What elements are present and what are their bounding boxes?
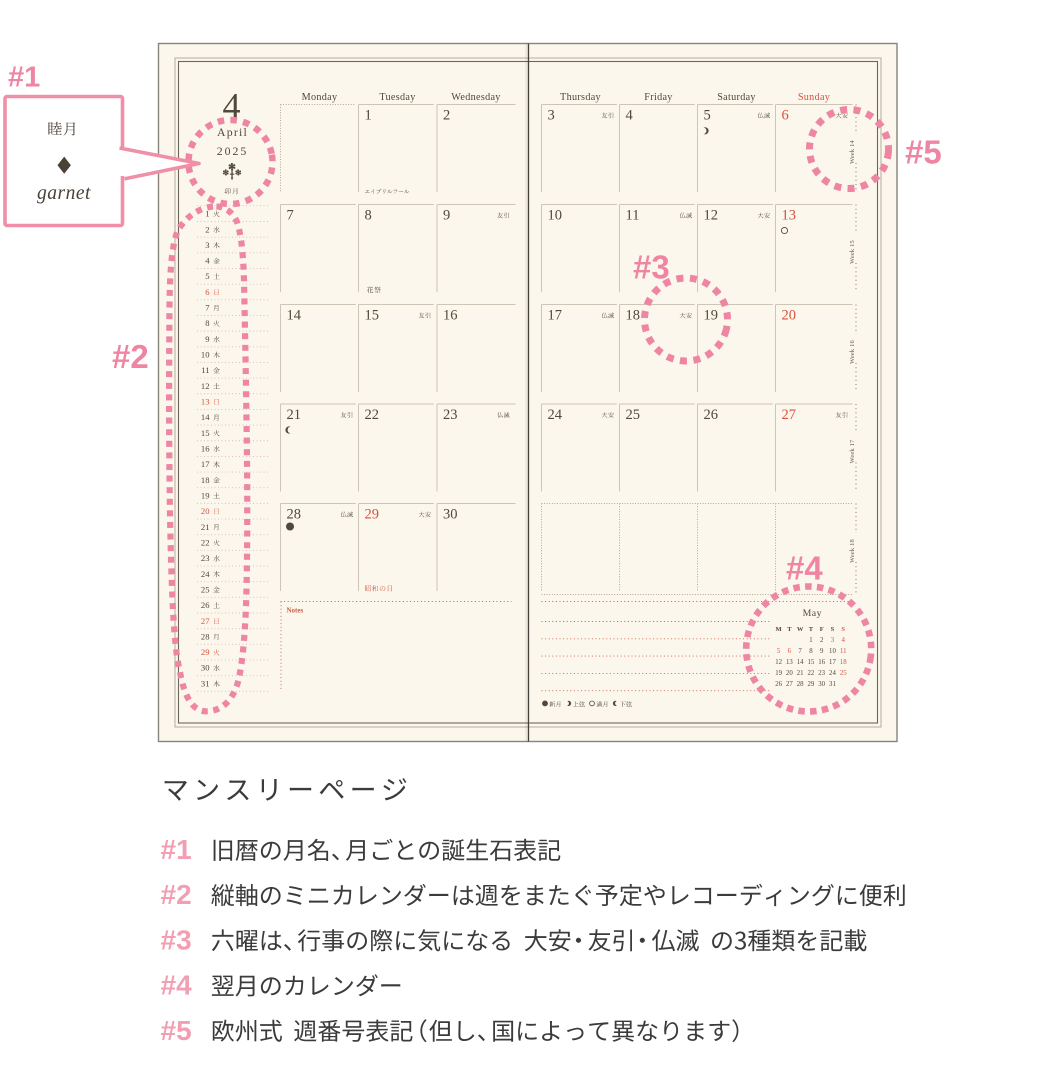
svg-text:27: 27 — [782, 407, 797, 423]
svg-text:12: 12 — [201, 381, 210, 391]
svg-text:13: 13 — [782, 208, 797, 224]
svg-text:3: 3 — [831, 637, 835, 644]
svg-text:21: 21 — [797, 670, 804, 677]
svg-text:1: 1 — [365, 108, 372, 124]
svg-text:2025: 2025 — [217, 144, 249, 158]
svg-text:7: 7 — [798, 648, 802, 655]
svg-text:S: S — [841, 626, 845, 633]
svg-text:30: 30 — [201, 663, 210, 673]
svg-text:S: S — [831, 626, 835, 633]
svg-text:14: 14 — [201, 412, 210, 422]
svg-text:garnet: garnet — [37, 183, 91, 204]
svg-text:24: 24 — [201, 569, 210, 579]
svg-text:18: 18 — [840, 659, 847, 666]
svg-text:31: 31 — [201, 678, 210, 688]
svg-text:22: 22 — [808, 670, 815, 677]
svg-text:3: 3 — [205, 240, 209, 250]
svg-text:8: 8 — [809, 648, 813, 655]
svg-text:#2: #2 — [112, 338, 149, 375]
svg-text:18: 18 — [626, 308, 641, 324]
svg-text:26: 26 — [775, 681, 782, 688]
svg-text:Friday: Friday — [644, 92, 673, 103]
svg-text:5: 5 — [205, 271, 209, 281]
svg-text:15: 15 — [808, 659, 815, 666]
svg-text:Tuesday: Tuesday — [379, 92, 416, 103]
svg-text:Week 17: Week 17 — [849, 439, 856, 463]
svg-text:20: 20 — [786, 670, 793, 677]
svg-text:28: 28 — [797, 681, 804, 688]
svg-text:23: 23 — [818, 670, 825, 677]
svg-text:13: 13 — [786, 659, 793, 666]
svg-text:Monday: Monday — [302, 92, 338, 103]
svg-text:10: 10 — [201, 350, 210, 360]
svg-text:26: 26 — [201, 600, 210, 610]
svg-text:4: 4 — [205, 256, 210, 266]
svg-text:25: 25 — [626, 407, 641, 423]
svg-text:April: April — [217, 125, 248, 139]
svg-text:26: 26 — [704, 407, 719, 423]
svg-text:22: 22 — [201, 537, 210, 547]
svg-text:Saturday: Saturday — [717, 92, 756, 103]
svg-text:28: 28 — [201, 631, 210, 641]
svg-text:30: 30 — [443, 507, 458, 523]
svg-text:21: 21 — [201, 522, 210, 532]
svg-text:#1: #1 — [161, 834, 192, 865]
svg-text:13: 13 — [201, 397, 210, 407]
svg-text:21: 21 — [287, 407, 302, 423]
svg-text:4: 4 — [626, 108, 634, 124]
svg-text:Week 14: Week 14 — [849, 140, 856, 164]
svg-text:20: 20 — [782, 308, 797, 324]
svg-text:28: 28 — [287, 507, 302, 523]
svg-text:7: 7 — [205, 303, 210, 313]
svg-text:T: T — [787, 626, 792, 633]
svg-text:Week 15: Week 15 — [849, 240, 856, 264]
svg-text:#3: #3 — [633, 249, 670, 286]
svg-text:23: 23 — [201, 553, 210, 563]
svg-text:T: T — [809, 626, 814, 633]
svg-text:#2: #2 — [161, 879, 192, 910]
svg-text:5: 5 — [777, 648, 781, 655]
svg-text:25: 25 — [840, 670, 847, 677]
svg-text:22: 22 — [365, 407, 380, 423]
svg-text:24: 24 — [548, 407, 563, 423]
svg-text:27: 27 — [201, 616, 210, 626]
svg-text:2: 2 — [443, 108, 450, 124]
svg-text:30: 30 — [818, 681, 825, 688]
svg-text:Week 16: Week 16 — [849, 340, 856, 364]
svg-text:18: 18 — [201, 475, 210, 485]
svg-text:19: 19 — [704, 308, 719, 324]
svg-text:19: 19 — [775, 670, 782, 677]
svg-text:Notes: Notes — [287, 607, 304, 615]
svg-text:6: 6 — [788, 648, 792, 655]
svg-text:15: 15 — [365, 308, 380, 324]
svg-text:16: 16 — [818, 659, 825, 666]
svg-text:9: 9 — [820, 648, 824, 655]
svg-text:#1: #1 — [8, 62, 40, 94]
svg-text:19: 19 — [201, 490, 210, 500]
svg-text:8: 8 — [365, 208, 372, 224]
svg-text:14: 14 — [287, 308, 302, 324]
svg-text:Sunday: Sunday — [798, 92, 831, 103]
svg-text:17: 17 — [548, 308, 563, 324]
svg-text:23: 23 — [443, 407, 458, 423]
svg-text:24: 24 — [829, 670, 836, 677]
svg-text:12: 12 — [775, 659, 782, 666]
svg-text:15: 15 — [201, 428, 210, 438]
svg-text:20: 20 — [201, 506, 210, 516]
svg-text:10: 10 — [829, 648, 836, 655]
svg-text:2: 2 — [820, 637, 824, 644]
svg-text:11: 11 — [840, 648, 847, 655]
svg-text:#4: #4 — [161, 970, 193, 1001]
svg-text:#5: #5 — [905, 134, 942, 171]
svg-text:10: 10 — [548, 208, 563, 224]
svg-text:5: 5 — [704, 108, 711, 124]
svg-text:Week 18: Week 18 — [849, 539, 856, 563]
svg-text:9: 9 — [443, 208, 450, 224]
svg-text:16: 16 — [201, 444, 210, 454]
svg-text:3: 3 — [548, 108, 555, 124]
svg-text:4: 4 — [842, 637, 846, 644]
svg-text:#4: #4 — [786, 550, 823, 587]
svg-text:F: F — [820, 626, 824, 633]
svg-text:2: 2 — [205, 224, 209, 234]
svg-text:May: May — [803, 608, 822, 619]
svg-text:Thursday: Thursday — [560, 92, 601, 103]
svg-text:7: 7 — [287, 208, 294, 224]
svg-text:29: 29 — [201, 647, 210, 657]
svg-text:W: W — [797, 626, 804, 633]
svg-text:8: 8 — [205, 318, 209, 328]
svg-text:12: 12 — [704, 208, 719, 224]
svg-text:M: M — [776, 626, 782, 633]
svg-text:14: 14 — [797, 659, 804, 666]
svg-text:29: 29 — [365, 507, 380, 523]
svg-text:27: 27 — [786, 681, 793, 688]
svg-text:#5: #5 — [161, 1015, 192, 1046]
svg-text:#3: #3 — [161, 924, 192, 955]
svg-text:1: 1 — [809, 637, 812, 644]
svg-text:16: 16 — [443, 308, 458, 324]
svg-text:6: 6 — [782, 108, 789, 124]
svg-text:25: 25 — [201, 584, 210, 594]
svg-text:17: 17 — [829, 659, 836, 666]
svg-text:11: 11 — [201, 365, 209, 375]
svg-text:Wednesday: Wednesday — [451, 92, 501, 103]
svg-text:6: 6 — [205, 287, 210, 297]
svg-text:31: 31 — [829, 681, 836, 688]
svg-text:11: 11 — [626, 208, 640, 224]
svg-text:29: 29 — [808, 681, 815, 688]
svg-text:9: 9 — [205, 334, 209, 344]
svg-text:17: 17 — [201, 459, 210, 469]
